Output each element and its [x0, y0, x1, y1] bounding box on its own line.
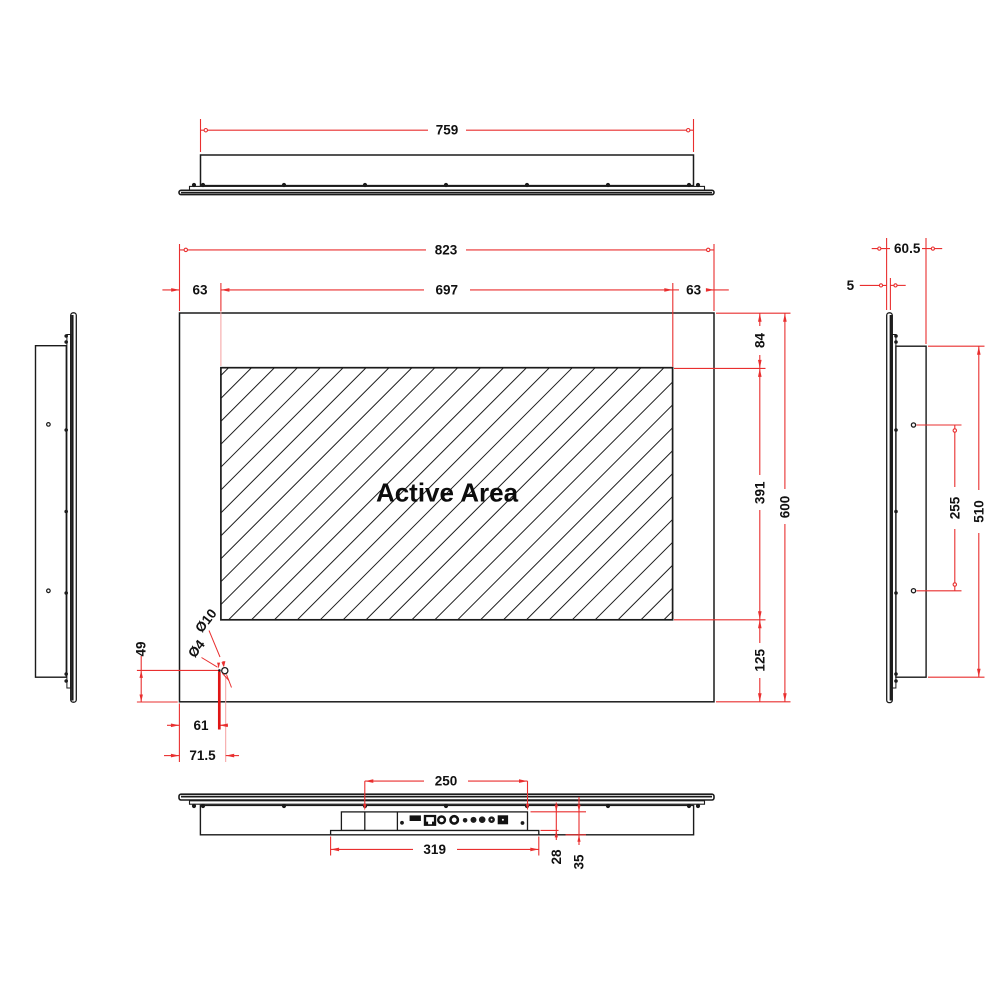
svg-text:60.5: 60.5 [894, 241, 921, 256]
svg-text:759: 759 [436, 123, 459, 138]
svg-text:63: 63 [192, 282, 208, 297]
svg-text:600: 600 [777, 496, 792, 519]
svg-text:510: 510 [971, 500, 986, 523]
svg-text:49: 49 [134, 641, 149, 656]
svg-text:63: 63 [686, 282, 702, 297]
svg-text:28: 28 [549, 849, 564, 865]
svg-text:84: 84 [752, 333, 767, 349]
svg-text:697: 697 [436, 282, 459, 297]
svg-text:823: 823 [435, 242, 458, 257]
svg-text:35: 35 [572, 854, 587, 870]
svg-text:Active Area: Active Area [376, 478, 519, 508]
svg-text:250: 250 [435, 774, 458, 789]
svg-text:61: 61 [193, 718, 209, 733]
svg-text:125: 125 [752, 649, 767, 672]
svg-text:391: 391 [752, 481, 767, 504]
svg-text:319: 319 [423, 842, 446, 857]
svg-text:71.5: 71.5 [189, 748, 216, 763]
svg-text:5: 5 [847, 278, 855, 293]
svg-text:255: 255 [947, 496, 962, 519]
